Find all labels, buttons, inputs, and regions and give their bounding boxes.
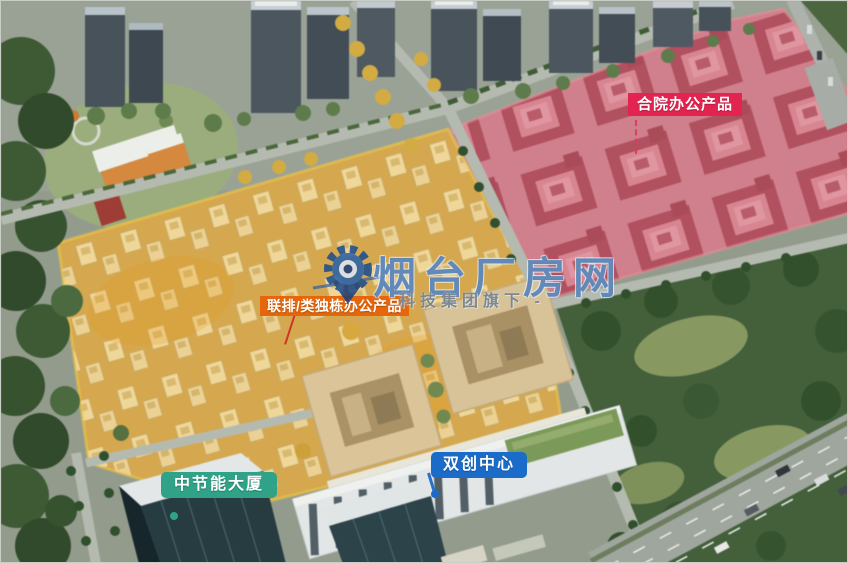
courtyard-pointer-line [635,120,637,154]
site-rendering-3d [1,1,848,563]
label-cecep-tower: 中节能大厦 [161,472,277,498]
cecep-pointer-dot [170,512,178,520]
innovation-pointer-dot [431,490,439,498]
aerial-site-plan: 合院办公产品 联排/类独栋办公产品 中节能大厦 双创中心 烟台厂房网 科技集团旗… [0,0,848,563]
label-townhouse-office: 联排/类独栋办公产品 [260,296,409,316]
label-courtyard-office: 合院办公产品 [628,93,742,116]
label-innovation-center: 双创中心 [431,452,527,478]
